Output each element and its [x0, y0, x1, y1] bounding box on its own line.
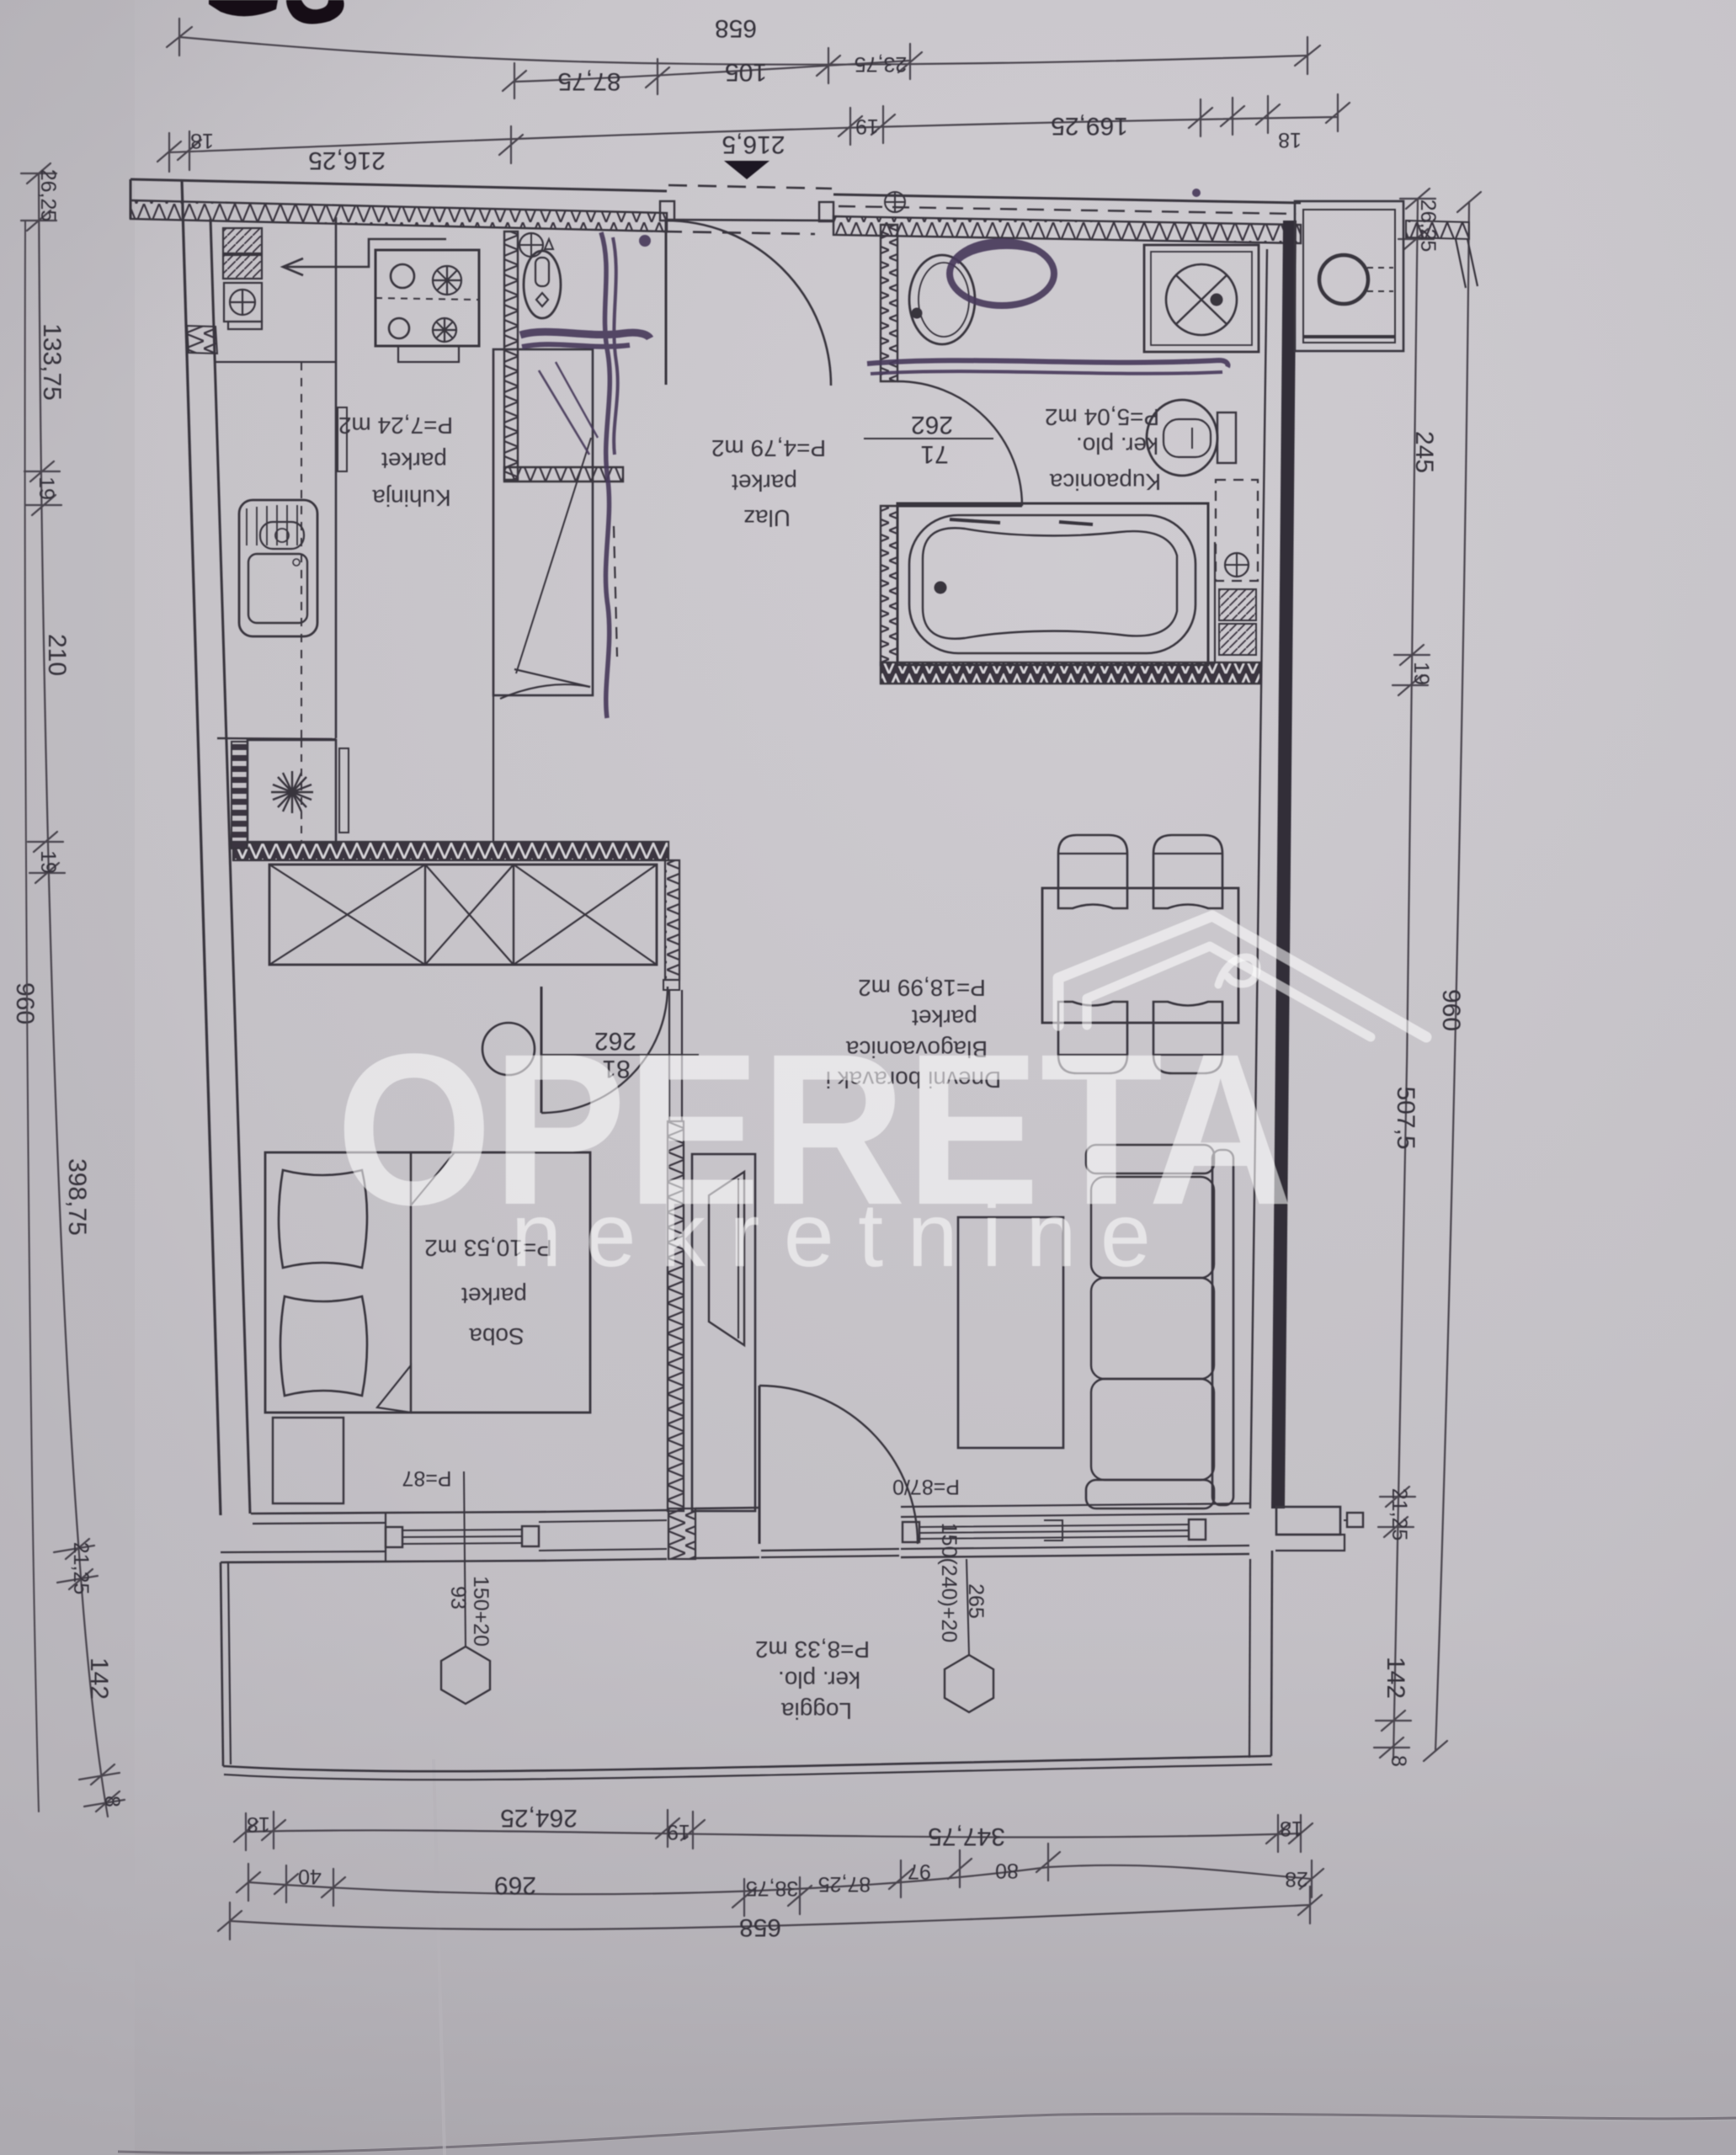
svg-text:97: 97	[908, 1860, 931, 1883]
svg-text:19: 19	[855, 114, 879, 138]
svg-text:8: 8	[100, 1796, 124, 1807]
svg-text:658: 658	[715, 14, 757, 42]
svg-text:P=87: P=87	[402, 1466, 451, 1490]
svg-text:P=18,99 m2: P=18,99 m2	[858, 975, 986, 1001]
svg-text:245: 245	[1410, 431, 1438, 473]
svg-text:Kupaonica: Kupaonica	[1049, 469, 1161, 495]
svg-text:19: 19	[35, 476, 58, 500]
svg-text:960: 960	[11, 982, 39, 1024]
svg-text:19: 19	[36, 850, 60, 874]
svg-text:265: 265	[964, 1583, 988, 1619]
svg-text:960: 960	[1437, 989, 1465, 1031]
svg-text:parket: parket	[732, 470, 797, 496]
svg-text:parket: parket	[381, 448, 447, 474]
svg-text:P=87/0: P=87/0	[892, 1475, 960, 1498]
svg-text:P=8,33 m2: P=8,33 m2	[755, 1636, 870, 1663]
svg-text:133,75: 133,75	[38, 323, 66, 401]
svg-text:80: 80	[995, 1859, 1019, 1882]
svg-text:P=4,79 m2: P=4,79 m2	[711, 435, 826, 461]
svg-text:Ulaz: Ulaz	[743, 505, 791, 531]
svg-text:nekretnine: nekretnine	[511, 1184, 1151, 1285]
svg-text:21,25: 21,25	[69, 1542, 93, 1595]
svg-text:210: 210	[43, 634, 71, 676]
svg-text:87,25: 87,25	[818, 1872, 871, 1896]
svg-text:ker. plo.: ker. plo.	[1076, 433, 1158, 459]
svg-text:262: 262	[911, 411, 953, 439]
svg-text:347,75: 347,75	[928, 1822, 1005, 1850]
svg-text:23,75: 23,75	[855, 52, 908, 76]
svg-text:Kuhinja: Kuhinja	[372, 485, 451, 511]
svg-text:142: 142	[85, 1657, 113, 1700]
svg-text:169,25: 169,25	[1051, 112, 1128, 140]
svg-text:93: 93	[446, 1586, 470, 1610]
svg-text:P=5,04 m2: P=5,04 m2	[1045, 404, 1159, 430]
svg-text:264,25: 264,25	[500, 1804, 578, 1832]
svg-text:87,75: 87,75	[557, 67, 620, 95]
svg-text:105: 105	[725, 58, 767, 86]
svg-text:150(240)+20: 150(240)+20	[937, 1523, 961, 1642]
svg-text:18: 18	[247, 1812, 270, 1836]
svg-text:P=7,24 m2: P=7,24 m2	[338, 412, 453, 439]
svg-text:21,25: 21,25	[1387, 1488, 1411, 1541]
svg-text:658: 658	[739, 1913, 781, 1941]
svg-text:Loggia: Loggia	[781, 1698, 853, 1724]
svg-text:parket: parket	[461, 1283, 527, 1309]
svg-text:26,25: 26,25	[36, 169, 60, 222]
svg-text:38,75: 38,75	[746, 1876, 799, 1900]
svg-text:150+20: 150+20	[469, 1576, 493, 1647]
svg-text:Soba: Soba	[469, 1323, 525, 1349]
svg-text:18: 18	[1278, 128, 1302, 152]
svg-text:507,5: 507,5	[1392, 1086, 1419, 1149]
svg-text:8: 8	[1387, 1755, 1410, 1767]
svg-text:40: 40	[298, 1865, 322, 1888]
svg-text:216,5: 216,5	[722, 130, 785, 158]
svg-text:269: 269	[494, 1871, 536, 1899]
svg-text:ker. plo.: ker. plo.	[778, 1667, 860, 1693]
svg-text:18: 18	[190, 129, 214, 152]
svg-text:398,75: 398,75	[63, 1158, 91, 1236]
svg-text:216,25: 216,25	[308, 146, 386, 174]
svg-text:142: 142	[1382, 1657, 1409, 1699]
svg-text:18: 18	[1280, 1817, 1303, 1840]
svg-text:71: 71	[920, 440, 948, 468]
svg-text:19: 19	[1409, 662, 1433, 685]
svg-text:28: 28	[1285, 1867, 1308, 1891]
svg-text:19: 19	[667, 1820, 690, 1844]
